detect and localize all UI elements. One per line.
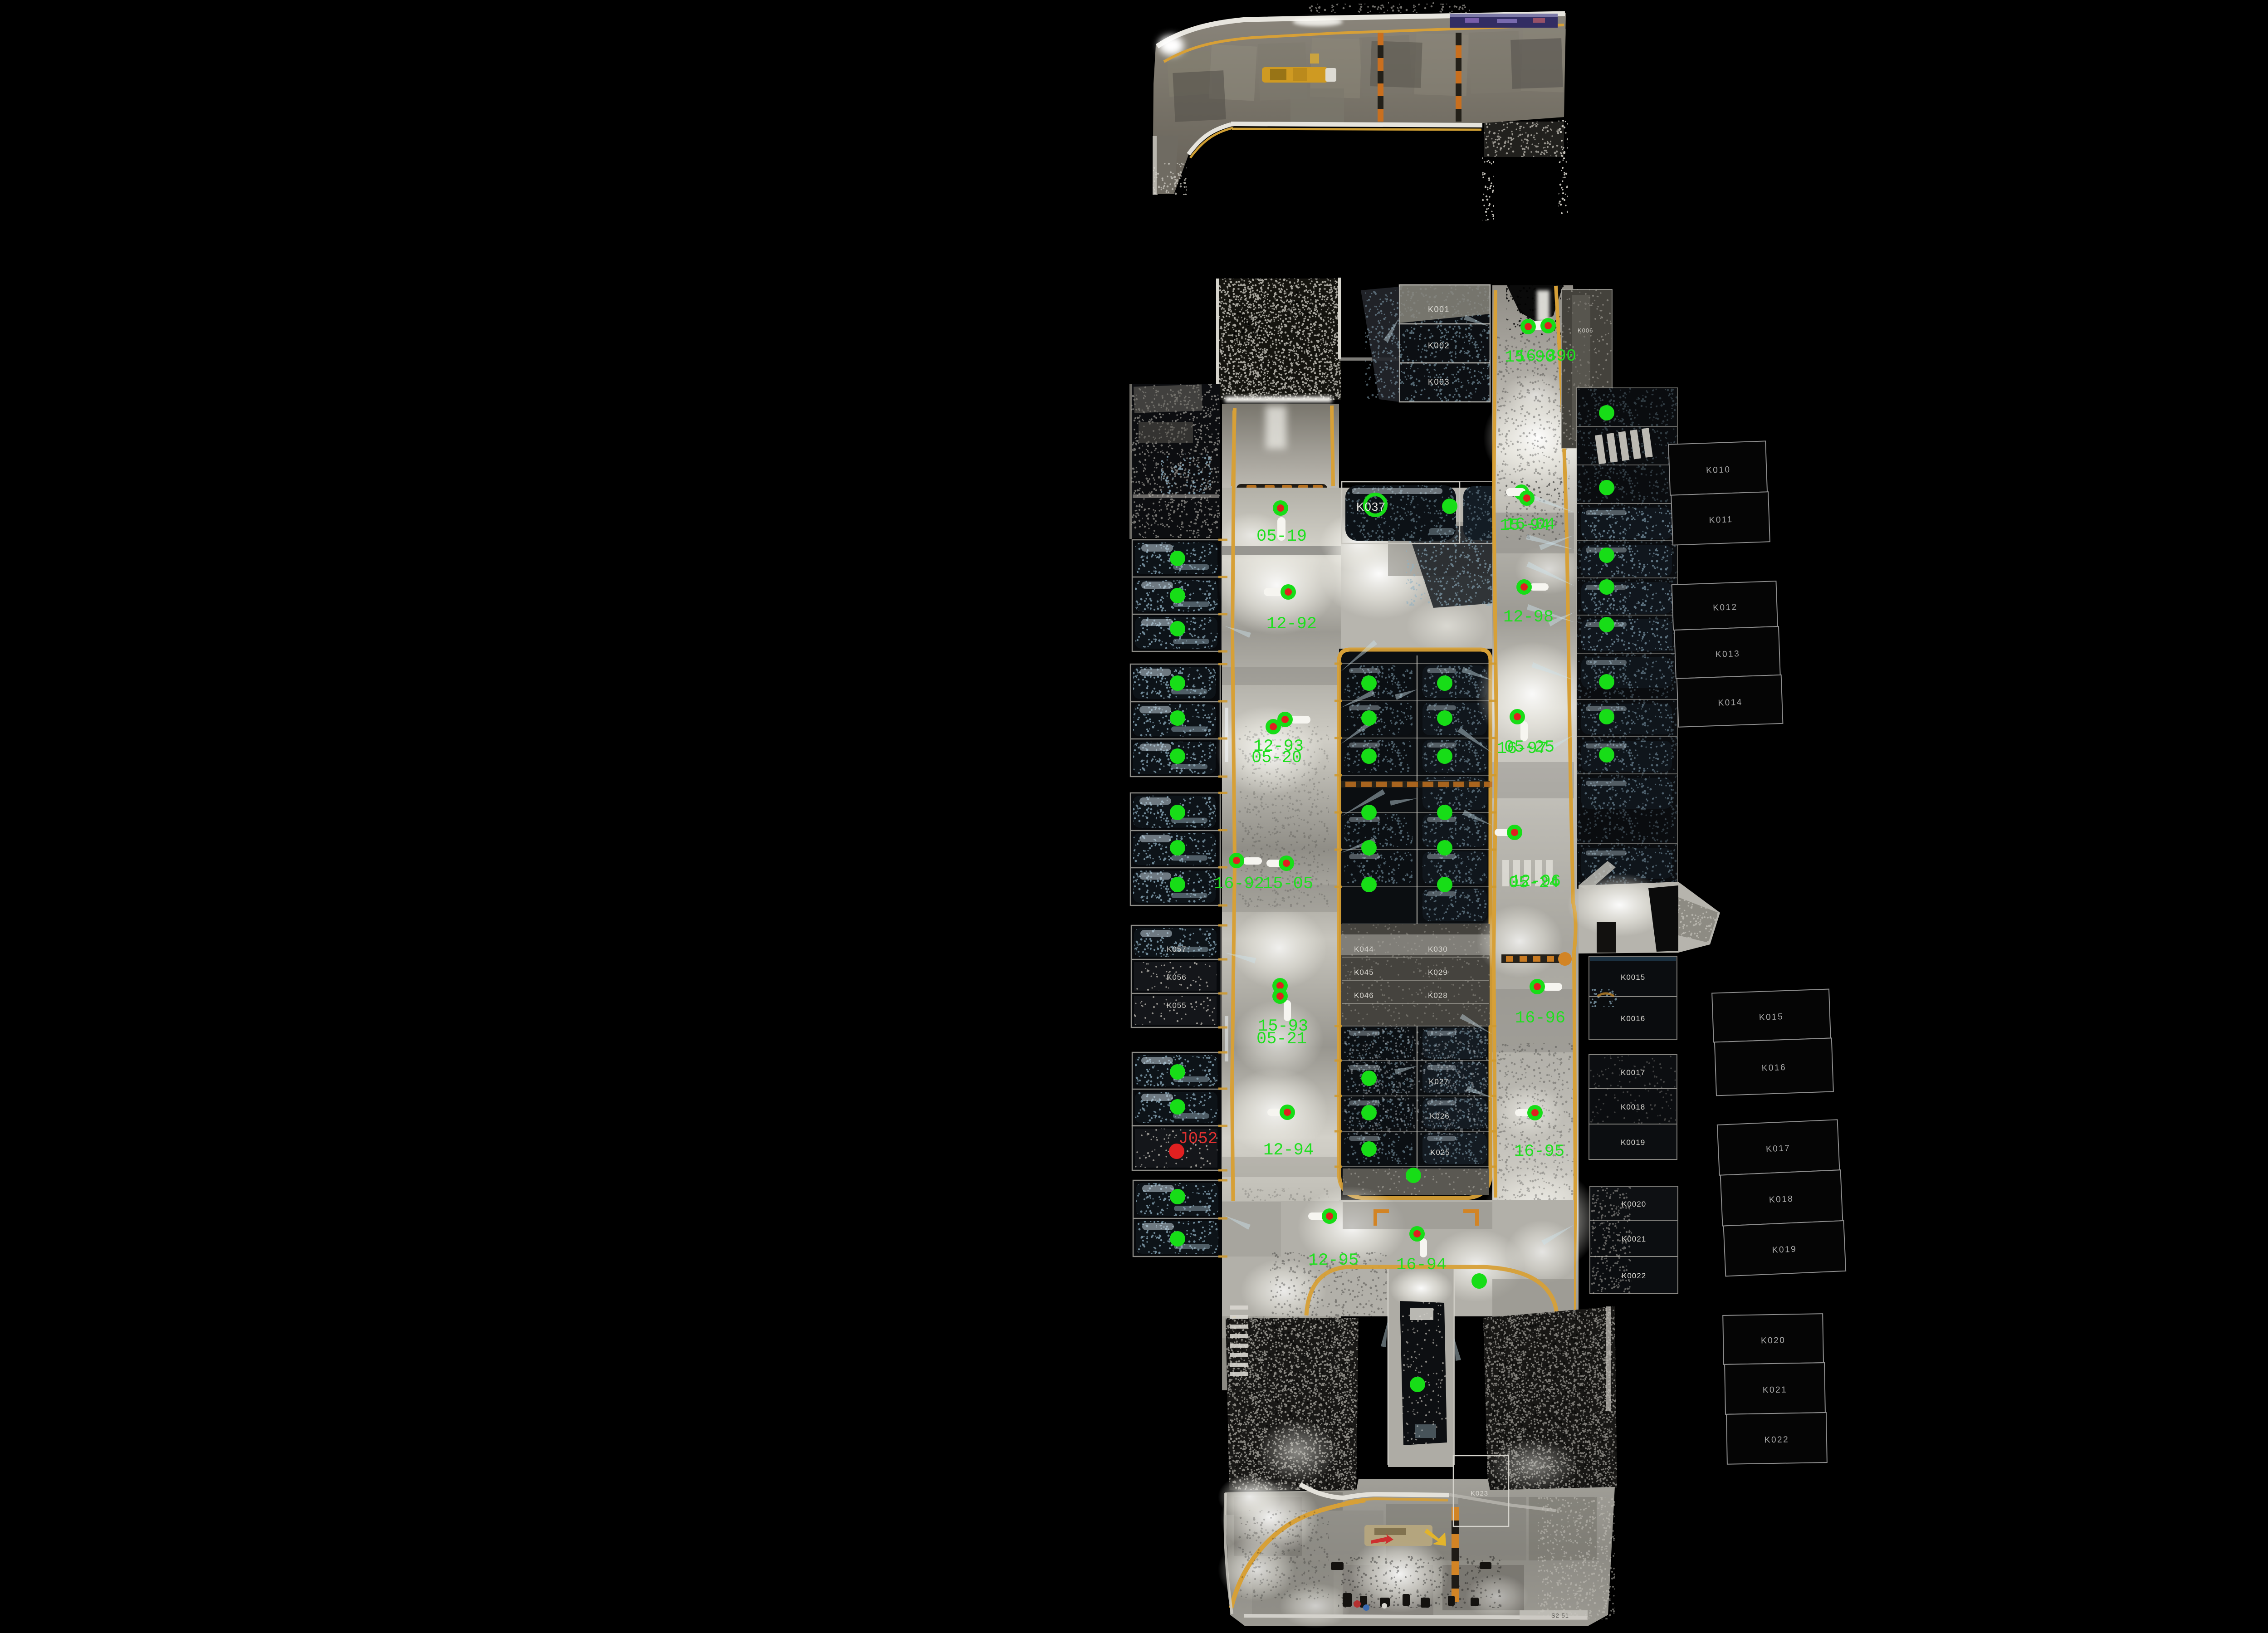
svg-text:05-20: 05-20: [1251, 748, 1302, 768]
svg-text:K022: K022: [1765, 1435, 1789, 1445]
svg-text:K044: K044: [1354, 945, 1374, 953]
svg-text:12-92: 12-92: [1266, 615, 1317, 634]
svg-text:K021: K021: [1763, 1385, 1788, 1395]
svg-text:K001: K001: [1428, 305, 1450, 314]
svg-text:16-96: 16-96: [1515, 1009, 1565, 1028]
svg-text:K045: K045: [1354, 968, 1374, 977]
svg-text:12-98: 12-98: [1503, 608, 1554, 627]
svg-text:K020: K020: [1761, 1336, 1786, 1346]
svg-text:K0019: K0019: [1621, 1138, 1645, 1147]
svg-text:K013: K013: [1715, 649, 1740, 660]
svg-text:K016: K016: [1761, 1063, 1786, 1073]
svg-text:K019: K019: [1772, 1245, 1797, 1255]
svg-text:K014: K014: [1718, 698, 1743, 708]
svg-text:K055: K055: [1167, 1001, 1187, 1010]
svg-text:16-94: 16-94: [1396, 1256, 1447, 1275]
svg-text:12-96: 12-96: [1510, 872, 1561, 891]
svg-text:K057: K057: [1167, 945, 1187, 953]
svg-text:05-19: 05-19: [1256, 527, 1307, 546]
svg-text:05-21: 05-21: [1256, 1030, 1307, 1049]
svg-text:16-04: 16-04: [1505, 515, 1555, 534]
svg-text:K003: K003: [1428, 377, 1450, 386]
svg-text:12-95: 12-95: [1308, 1251, 1359, 1270]
svg-text:K017: K017: [1766, 1144, 1791, 1154]
svg-text:K011: K011: [1709, 515, 1733, 525]
svg-text:K029: K029: [1428, 968, 1448, 977]
svg-text:12-94: 12-94: [1263, 1141, 1314, 1160]
svg-text:16-390: 16-390: [1516, 347, 1576, 366]
svg-text:K015: K015: [1759, 1012, 1784, 1022]
svg-text:K0016: K0016: [1621, 1014, 1645, 1023]
svg-text:K028: K028: [1428, 991, 1448, 1000]
svg-text:05-25: 05-25: [1504, 738, 1554, 757]
svg-text:K018: K018: [1769, 1194, 1794, 1205]
svg-text:K037: K037: [1356, 500, 1386, 513]
svg-text:J052: J052: [1178, 1129, 1217, 1148]
svg-text:16-92: 16-92: [1214, 875, 1264, 894]
svg-text:K010: K010: [1706, 465, 1731, 475]
svg-text:16-95: 16-95: [1514, 1142, 1564, 1161]
svg-text:K056: K056: [1167, 973, 1187, 982]
svg-text:15-05: 15-05: [1263, 875, 1313, 894]
svg-text:K025: K025: [1430, 1148, 1450, 1157]
svg-text:K0015: K0015: [1621, 973, 1645, 982]
svg-text:K030: K030: [1428, 945, 1448, 953]
svg-text:K026: K026: [1430, 1112, 1450, 1120]
svg-text:K012: K012: [1713, 602, 1738, 613]
svg-text:S2 51: S2 51: [1551, 1612, 1569, 1619]
svg-text:K023: K023: [1471, 1490, 1488, 1497]
svg-text:K006: K006: [1578, 327, 1593, 334]
svg-text:K002: K002: [1428, 341, 1450, 350]
svg-text:K027: K027: [1429, 1077, 1449, 1086]
svg-text:K046: K046: [1354, 991, 1374, 1000]
